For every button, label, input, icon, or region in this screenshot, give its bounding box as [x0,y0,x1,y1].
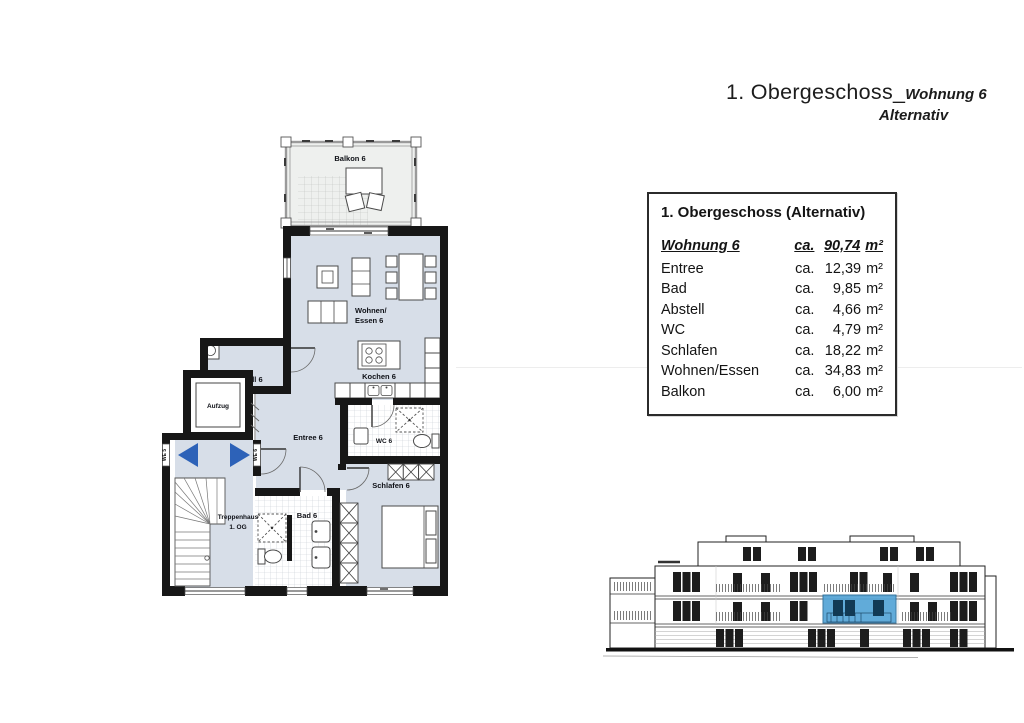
ground-line [603,648,1014,658]
label-wohnen-2: Essen 6 [355,316,383,325]
dining-set [386,254,436,300]
wardrobe-north [388,464,434,480]
label-wohnen-1: Wohnen/ [355,306,387,315]
label-we6: WE 6 [253,449,259,461]
bad-toilet [258,549,282,564]
room-area-row: Bad ca. 9,85 m² [661,279,883,300]
page-title: 1. Obergeschoss_ [726,80,905,104]
label-kochen: Kochen 6 [362,372,396,381]
sofa-vertical [352,258,370,296]
building-elevation [598,516,1023,668]
area-table: 1. Obergeschoss (Alternativ) Wohnung 6 c… [647,192,897,416]
balcony: Balkon 6 [281,137,421,228]
bottom-windows [185,588,413,595]
unit-name: Wohnung 6 [661,236,794,257]
room-area: ca. 4,66 m² [795,300,883,321]
balcony-railing-1f-right [900,612,952,621]
label-aufzug: Aufzug [207,403,229,410]
label-bad: Bad 6 [297,511,317,520]
sofa-horizontal [308,301,347,323]
label-schlafen: Schlafen 6 [372,481,410,490]
room-name: Bad [661,279,795,300]
room-area: ca. 34,83 m² [795,361,883,382]
room-area-row: WC ca. 4,79 m² [661,320,883,341]
elevation-right-step [985,576,996,648]
room-name: Entree [661,259,795,280]
room-name: Schlafen [661,341,795,362]
elevation-penthouse [698,536,960,566]
cooktop-island [358,341,400,369]
room-area-row: Balkon ca. 6,00 m² [661,382,883,403]
wc-toilet [414,434,440,448]
floor-plan: Balkon 6 [150,128,470,613]
title-line: 1. Obergeschoss_Wohnung 6 [726,80,1006,105]
room-name: Balkon [661,382,795,403]
room-name: Abstell [661,300,795,321]
elevation-left-wing [610,578,655,648]
room-name: WC [661,320,795,341]
balcony-door [310,227,388,235]
balcony-railing-2f-left [716,584,780,592]
label-treppenhaus-1: Treppenhaus [218,514,259,521]
bed [382,506,438,568]
page-title-unit: Wohnung 6 [905,86,986,103]
label-balkon: Balkon 6 [334,154,365,163]
highlighted-unit [823,595,896,623]
area-table-header: 1. Obergeschoss (Alternativ) [661,204,883,221]
elevator: Aufzug [183,370,253,440]
room-area-row: Entree ca. 12,39 m² [661,259,883,280]
title-block: 1. Obergeschoss_Wohnung 6 Alternativ [726,80,1006,124]
room-name: Wohnen/Essen [661,361,795,382]
room-area: ca. 9,85 m² [795,279,883,300]
sideboard [317,266,338,288]
balcony-railing-1f-left [716,612,780,621]
label-treppenhaus-2: 1. OG [229,524,246,531]
label-wc: WC 6 [376,438,393,445]
label-entree: Entree 6 [293,433,323,442]
page-title-variant: Alternativ [879,107,1006,124]
room-area-list: Entree ca. 12,39 m² Bad ca. 9,85 m² [661,259,883,403]
unit-total-row: Wohnung 6 ca. 90,74 m² [661,236,883,257]
room-area-row: Wohnen/Essen ca. 34,83 m² [661,361,883,382]
room-area: ca. 6,00 m² [795,382,883,403]
room-area-row: Abstell ca. 4,66 m² [661,300,883,321]
room-area: ca. 4,79 m² [795,320,883,341]
room-area: ca. 18,22 m² [795,341,883,362]
wc-sink [354,428,368,444]
balcony-railing-2f-center [823,584,896,592]
kitchen-sink [365,383,395,398]
unit-total-area: ca. 90,74 m² [794,236,883,257]
room-area: ca. 12,39 m² [795,259,883,280]
room-area-row: Schlafen ca. 18,22 m² [661,341,883,362]
wardrobe-west [340,503,358,583]
living-left-window [284,258,291,278]
label-we5: WE 5 [162,449,168,461]
